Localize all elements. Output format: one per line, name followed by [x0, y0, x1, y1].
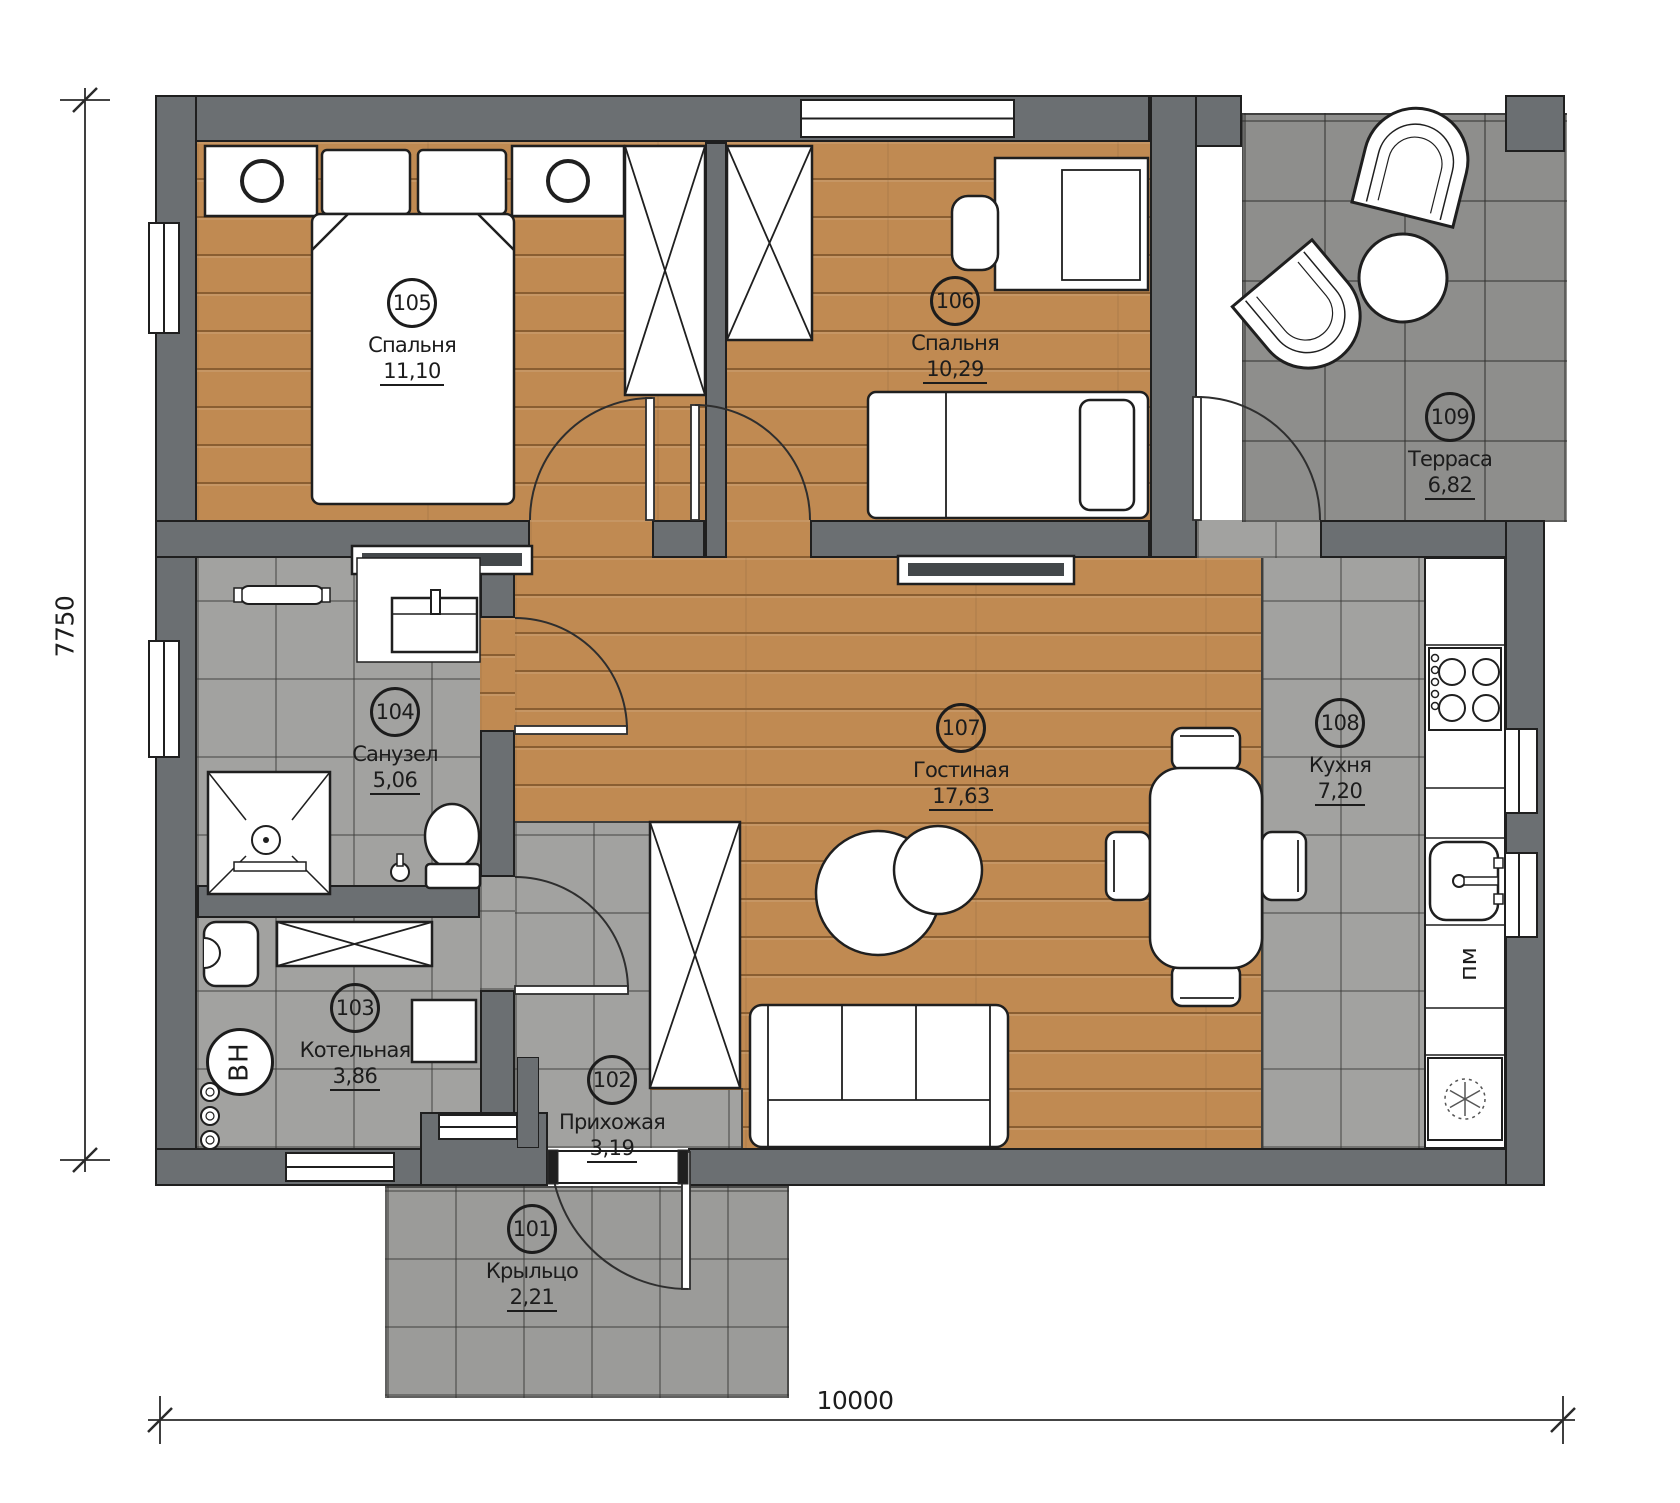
room-area: 3,86 [330, 1064, 381, 1091]
single-bed [868, 392, 1148, 518]
terrace-armchair-2 [1232, 240, 1381, 390]
bedroom1-door-leaf [646, 398, 654, 520]
bathroom-door-leaf [515, 726, 627, 734]
dimension-vertical: 7750 [51, 587, 80, 667]
room-number-badge: 103 [330, 983, 380, 1033]
wardrobe-bedroom1 [625, 146, 705, 395]
room-name: Гостиная [913, 758, 1009, 782]
room-name: Спальня [368, 333, 456, 357]
kitchen-sink [1430, 842, 1503, 920]
room-label-103: 103 Котельная 3,86 [295, 983, 415, 1091]
washing-machine [204, 922, 258, 986]
boiler-door-leaf [515, 986, 628, 994]
shower [208, 772, 330, 894]
towel-radiator [234, 586, 330, 604]
room-number-badge: 104 [370, 687, 420, 737]
fridge [1428, 1058, 1502, 1140]
plan-graphics [0, 0, 1680, 1503]
coffee-tables [816, 826, 982, 955]
entrance-door-frame-right [678, 1150, 688, 1184]
room-name: Котельная [300, 1038, 411, 1062]
room-number-badge: 105 [387, 278, 437, 328]
room-area: 3,19 [587, 1136, 638, 1163]
terrace-door-leaf [1193, 397, 1201, 520]
room-name: Крыльцо [486, 1259, 578, 1283]
bedroom1-nightstand-right [512, 146, 624, 216]
heating-manifold [201, 1083, 219, 1149]
water-heater-symbol: ВН [206, 1028, 274, 1096]
water-heater-label: ВН [225, 1042, 255, 1081]
toilet [425, 804, 480, 888]
room-label-107: 107 Гостиная 17,63 [901, 703, 1021, 811]
room-area: 10,29 [923, 357, 987, 384]
desk [952, 158, 1148, 290]
bathroom-vanity [357, 558, 480, 662]
wardrobe-bedroom2 [727, 146, 812, 340]
room-name: Спальня [911, 331, 999, 355]
room-area: 5,06 [370, 768, 421, 795]
dimension-horizontal: 10000 [775, 1386, 935, 1415]
boiler-cabinet [412, 1000, 476, 1062]
dining-set [1106, 728, 1306, 1006]
room-label-108: 108 Кухня 7,20 [1280, 698, 1400, 806]
boiler-closet [277, 922, 432, 966]
room-number-badge: 109 [1425, 392, 1475, 442]
terrace-table [1359, 234, 1447, 322]
hallway-closet [650, 822, 740, 1088]
toilet-brush [391, 854, 409, 881]
room-area: 7,20 [1315, 779, 1366, 806]
room-name: Терраса [1408, 447, 1492, 471]
room-area: 6,82 [1425, 473, 1476, 500]
bedroom2-door-leaf [691, 405, 699, 520]
room-name: Кухня [1309, 753, 1371, 777]
room-label-104: 104 Санузел 5,06 [335, 687, 455, 795]
tv-console [898, 556, 1074, 584]
room-label-101: 101 Крыльцо 2,21 [472, 1204, 592, 1312]
room-label-109: 109 Терраса 6,82 [1390, 392, 1510, 500]
room-number-badge: 106 [930, 276, 980, 326]
room-name: Санузел [352, 742, 438, 766]
room-label-102: 102 Прихожая 3,19 [552, 1055, 672, 1163]
room-number-badge: 101 [507, 1204, 557, 1254]
room-area: 17,63 [929, 784, 993, 811]
terrace-armchair-1 [1352, 97, 1479, 227]
room-name: Прихожая [559, 1110, 665, 1134]
dishwasher-label: пм [1454, 944, 1482, 984]
room-label-106: 106 Спальня 10,29 [895, 276, 1015, 384]
room-label-105: 105 Спальня 11,10 [352, 278, 472, 386]
room-area: 11,10 [380, 359, 444, 386]
room-number-badge: 108 [1315, 698, 1365, 748]
floor-plan: ВН пм 105 Спальня 11,10 106 Спальня 10,2… [0, 0, 1680, 1503]
sofa [750, 1005, 1008, 1147]
room-number-badge: 102 [587, 1055, 637, 1105]
bedroom1-nightstand-left [205, 146, 317, 216]
room-area: 2,21 [507, 1285, 558, 1312]
room-number-badge: 107 [936, 703, 986, 753]
